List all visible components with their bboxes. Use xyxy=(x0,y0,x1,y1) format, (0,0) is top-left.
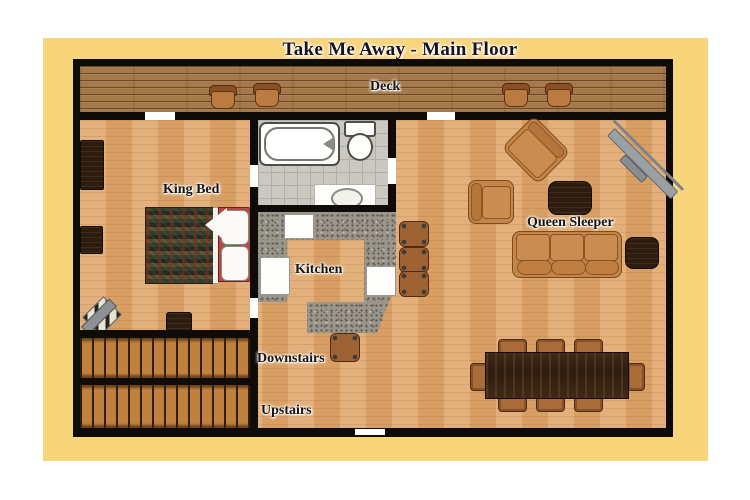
deck-chair-icon xyxy=(207,85,237,111)
downstairs-label: Downstairs xyxy=(257,351,325,367)
door-main-entry xyxy=(355,429,385,435)
king-bed-icon xyxy=(145,207,251,282)
kitchen-counter-top xyxy=(258,212,396,240)
bed-pillow xyxy=(221,246,249,281)
bar-stool-icon xyxy=(330,333,360,362)
floor-plan: Deck xyxy=(73,59,673,437)
dishwasher-icon xyxy=(366,266,396,296)
wall-bathroom-bottom xyxy=(250,205,396,212)
dining-table-icon xyxy=(485,352,629,399)
dining-chair-icon xyxy=(627,363,645,391)
door-bedroom-hall xyxy=(250,298,258,318)
deck-chair-icon xyxy=(251,83,281,109)
dresser-icon xyxy=(80,140,104,190)
page-title: Take Me Away - Main Floor xyxy=(75,39,725,61)
floor-plan-page: Take Me Away - Main Floor Deck xyxy=(0,0,750,500)
stairs-up-icon xyxy=(80,385,250,428)
bar-stool-icon xyxy=(399,221,429,247)
queen-sleeper-label: Queen Sleeper xyxy=(527,215,614,231)
wall-stair-divider xyxy=(80,378,258,385)
end-table-icon xyxy=(625,237,659,269)
upstairs-label: Upstairs xyxy=(261,403,312,419)
tub-faucet-icon xyxy=(323,137,334,151)
corner-chair-icon xyxy=(81,299,121,333)
wall-bedroom-bottom xyxy=(80,330,258,338)
blanket-chest-icon xyxy=(166,312,192,332)
queen-sleeper-sofa-icon xyxy=(512,231,622,278)
nightstand-icon xyxy=(80,226,103,254)
deck-label: Deck xyxy=(370,79,400,95)
stairs-down-icon xyxy=(80,338,250,378)
toilet-bowl-icon xyxy=(347,133,373,161)
bar-stool-icon xyxy=(399,247,429,273)
refrigerator-icon xyxy=(260,257,290,295)
armchair-back xyxy=(471,183,482,221)
door-bathroom-right xyxy=(388,158,396,184)
range-icon xyxy=(284,214,314,239)
king-bed-label: King Bed xyxy=(163,182,219,198)
kitchen-label: Kitchen xyxy=(295,262,342,278)
deck-area: Deck xyxy=(80,66,666,112)
bar-stool-icon xyxy=(399,271,429,297)
deck-chair-icon xyxy=(500,83,530,109)
door-bathroom-left xyxy=(250,165,258,187)
door-bedroom-deck xyxy=(145,112,175,120)
armchair-icon xyxy=(468,180,514,224)
door-living-deck xyxy=(427,112,455,120)
bathtub-icon xyxy=(259,122,340,166)
bed-quilt xyxy=(145,207,215,284)
coffee-table-icon xyxy=(548,181,592,215)
deck-chair-icon xyxy=(543,83,573,109)
